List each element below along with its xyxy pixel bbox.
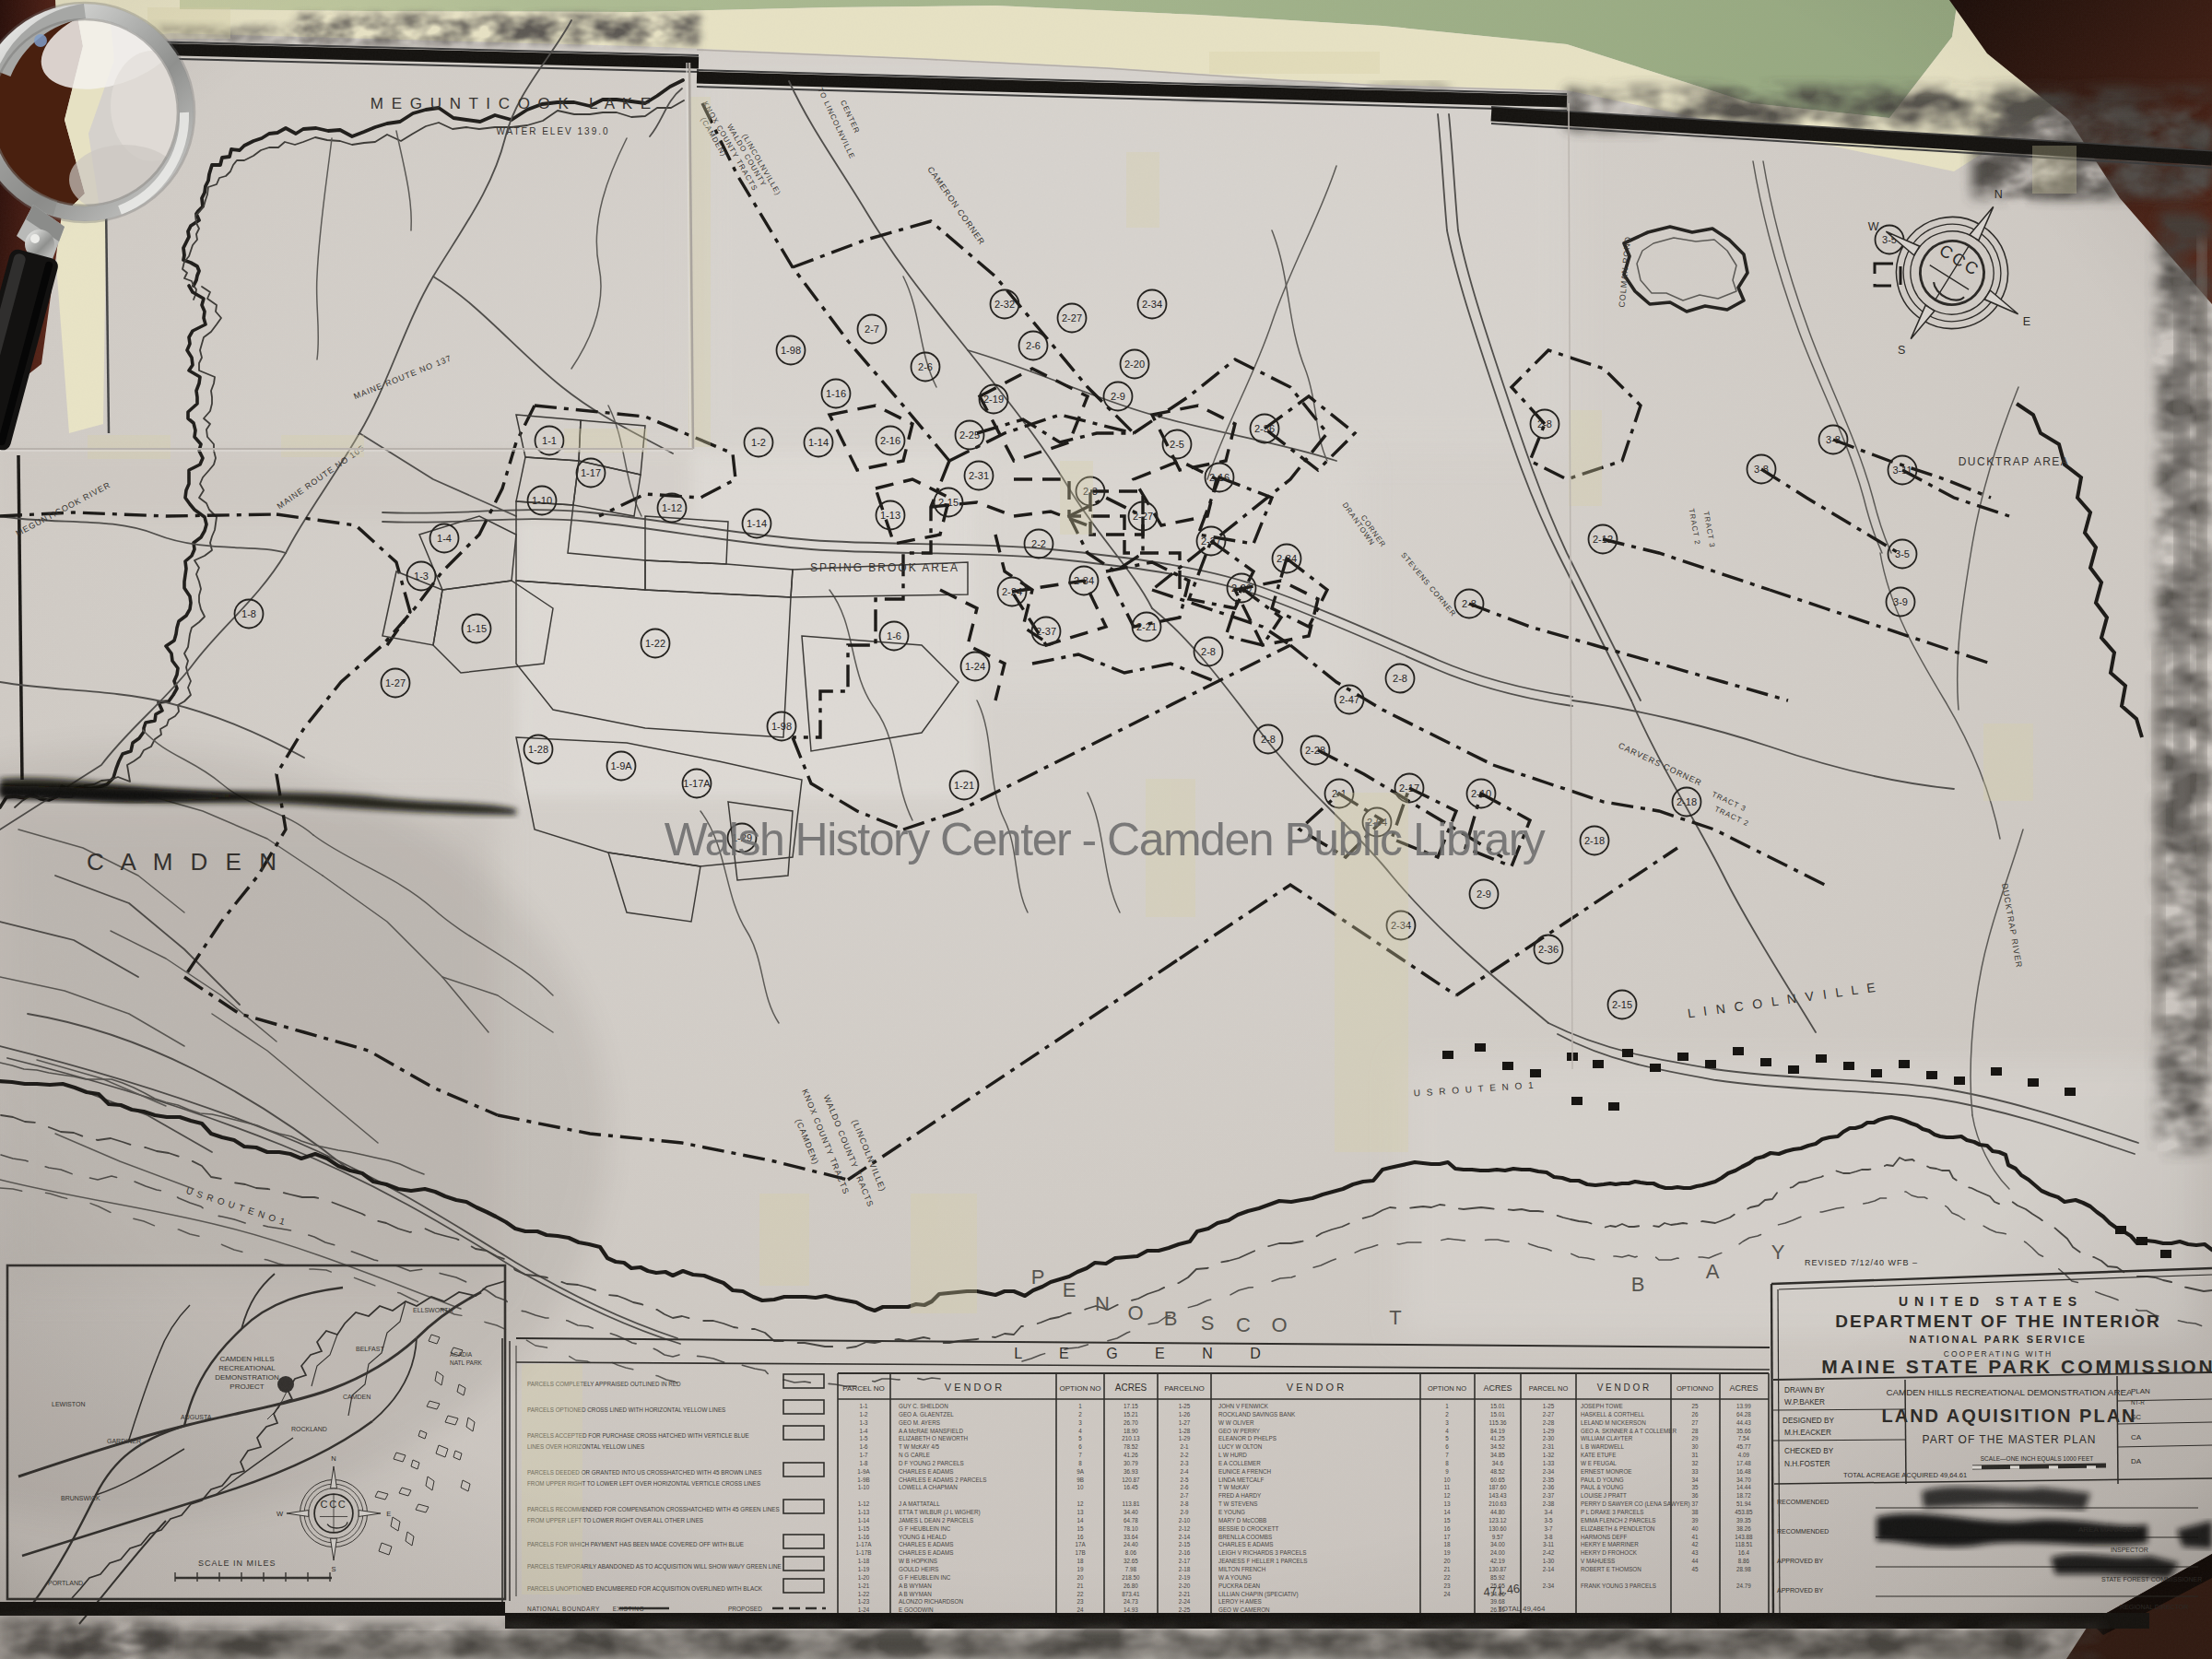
svg-text:Walsh History Center - Camden: Walsh History Center - Camden Public Lib… [665,814,1546,865]
